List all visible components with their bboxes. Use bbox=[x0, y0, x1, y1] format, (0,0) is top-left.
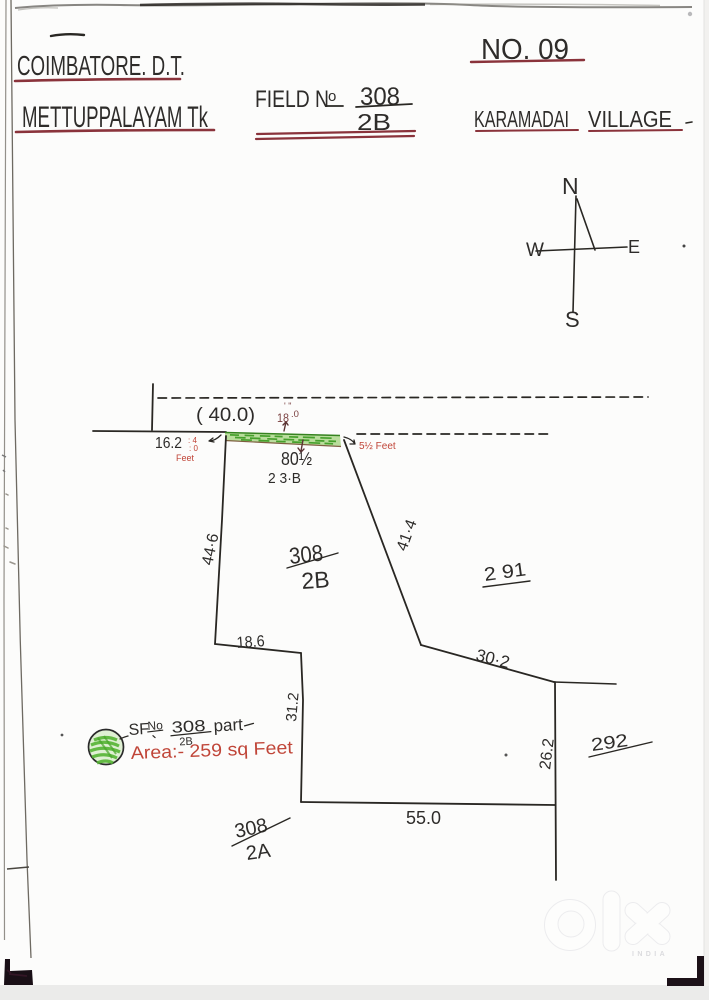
svg-text:S: S bbox=[565, 307, 580, 332]
svg-text:Feet: Feet bbox=[176, 453, 195, 463]
svg-text:.0: .0 bbox=[291, 409, 299, 420]
svg-text:N: N bbox=[562, 173, 579, 199]
svg-text:E: E bbox=[628, 237, 640, 257]
svg-text:W: W bbox=[526, 240, 544, 261]
svg-text:INDIA: INDIA bbox=[632, 951, 668, 958]
svg-text:FIELD N: FIELD N bbox=[255, 86, 329, 113]
svg-text:2 3·B: 2 3·B bbox=[268, 470, 301, 487]
svg-text:55.0: 55.0 bbox=[406, 808, 441, 828]
svg-text:o: o bbox=[328, 88, 336, 105]
svg-text:16.2: 16.2 bbox=[155, 435, 182, 452]
svg-text:( 40.0): ( 40.0) bbox=[196, 405, 255, 426]
svg-text:5½ Feet: 5½ Feet bbox=[359, 441, 396, 452]
svg-text:COIMBATORE. D.T.: COIMBATORE. D.T. bbox=[17, 50, 185, 81]
svg-text:' ": ' " bbox=[284, 401, 291, 411]
svg-text:part: part bbox=[213, 715, 244, 736]
svg-text:KARAMADAI: KARAMADAI bbox=[474, 106, 569, 132]
svg-text:2B: 2B bbox=[301, 566, 331, 594]
svg-text:80½: 80½ bbox=[281, 449, 312, 469]
svg-text:308: 308 bbox=[288, 540, 325, 569]
svg-text:2A: 2A bbox=[245, 840, 273, 865]
svg-text:VILLAGE: VILLAGE bbox=[588, 106, 672, 132]
svg-text:: 0: : 0 bbox=[189, 444, 198, 453]
svg-text:18.6: 18.6 bbox=[236, 633, 265, 652]
svg-text:31.2: 31.2 bbox=[283, 692, 302, 723]
